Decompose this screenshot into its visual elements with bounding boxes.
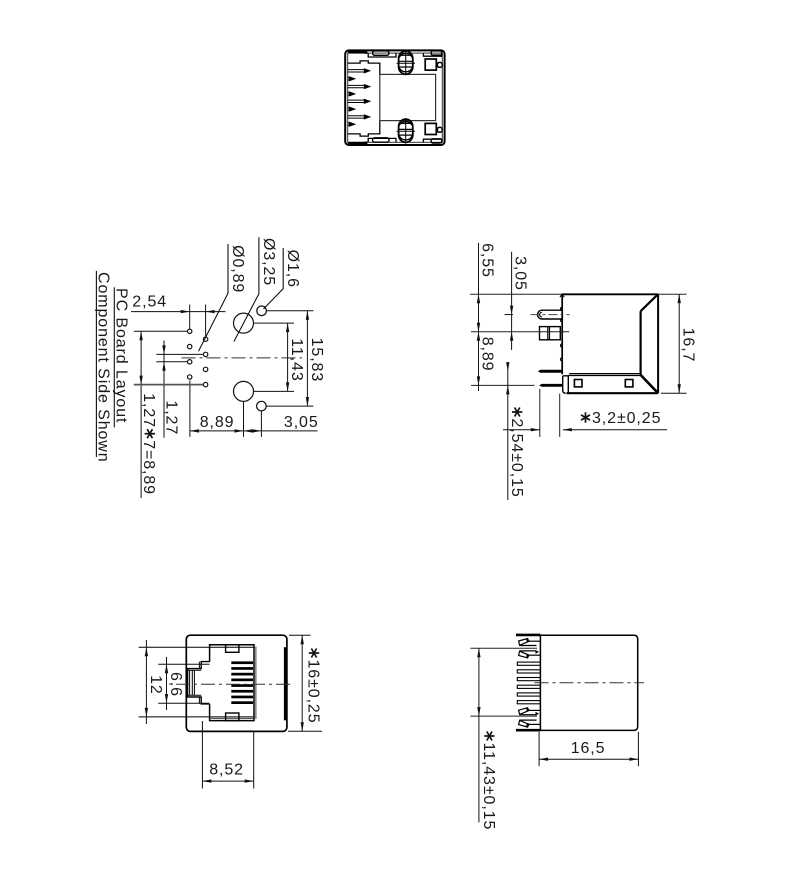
svg-text:16,7: 16,7 — [680, 328, 697, 363]
svg-text:12: 12 — [147, 675, 164, 695]
svg-text:7=8,89: 7=8,89 — [140, 440, 157, 495]
svg-text:1,27: 1,27 — [140, 393, 157, 428]
svg-text:15,83: 15,83 — [308, 338, 325, 383]
svg-text:1,27: 1,27 — [162, 400, 179, 435]
svg-text:Component Side Shown: Component Side Shown — [95, 272, 112, 463]
svg-text:11,43: 11,43 — [288, 338, 305, 381]
svg-text:3,05: 3,05 — [284, 414, 319, 431]
svg-text:3,05: 3,05 — [512, 256, 529, 291]
svg-text:16,5: 16,5 — [571, 740, 606, 757]
svg-text:Ø0,89: Ø0,89 — [229, 245, 246, 293]
svg-text:11,43±0,15: 11,43±0,15 — [480, 743, 497, 831]
svg-text:16±0,25: 16±0,25 — [305, 660, 322, 724]
svg-text:PC Board Layout: PC Board Layout — [113, 288, 130, 423]
svg-text:2,54: 2,54 — [132, 294, 167, 311]
svg-text:6,6: 6,6 — [167, 672, 184, 697]
svg-text:Ø1,6: Ø1,6 — [284, 250, 301, 288]
svg-text:Ø3,25: Ø3,25 — [260, 238, 277, 286]
svg-text:8,52: 8,52 — [209, 761, 244, 778]
svg-text:8,89: 8,89 — [200, 414, 235, 431]
svg-text:3,2±0,25: 3,2±0,25 — [592, 410, 661, 427]
svg-text:6,55: 6,55 — [479, 243, 496, 278]
svg-text:8,89: 8,89 — [479, 337, 496, 372]
svg-text:2,54±0,15: 2,54±0,15 — [508, 419, 525, 498]
